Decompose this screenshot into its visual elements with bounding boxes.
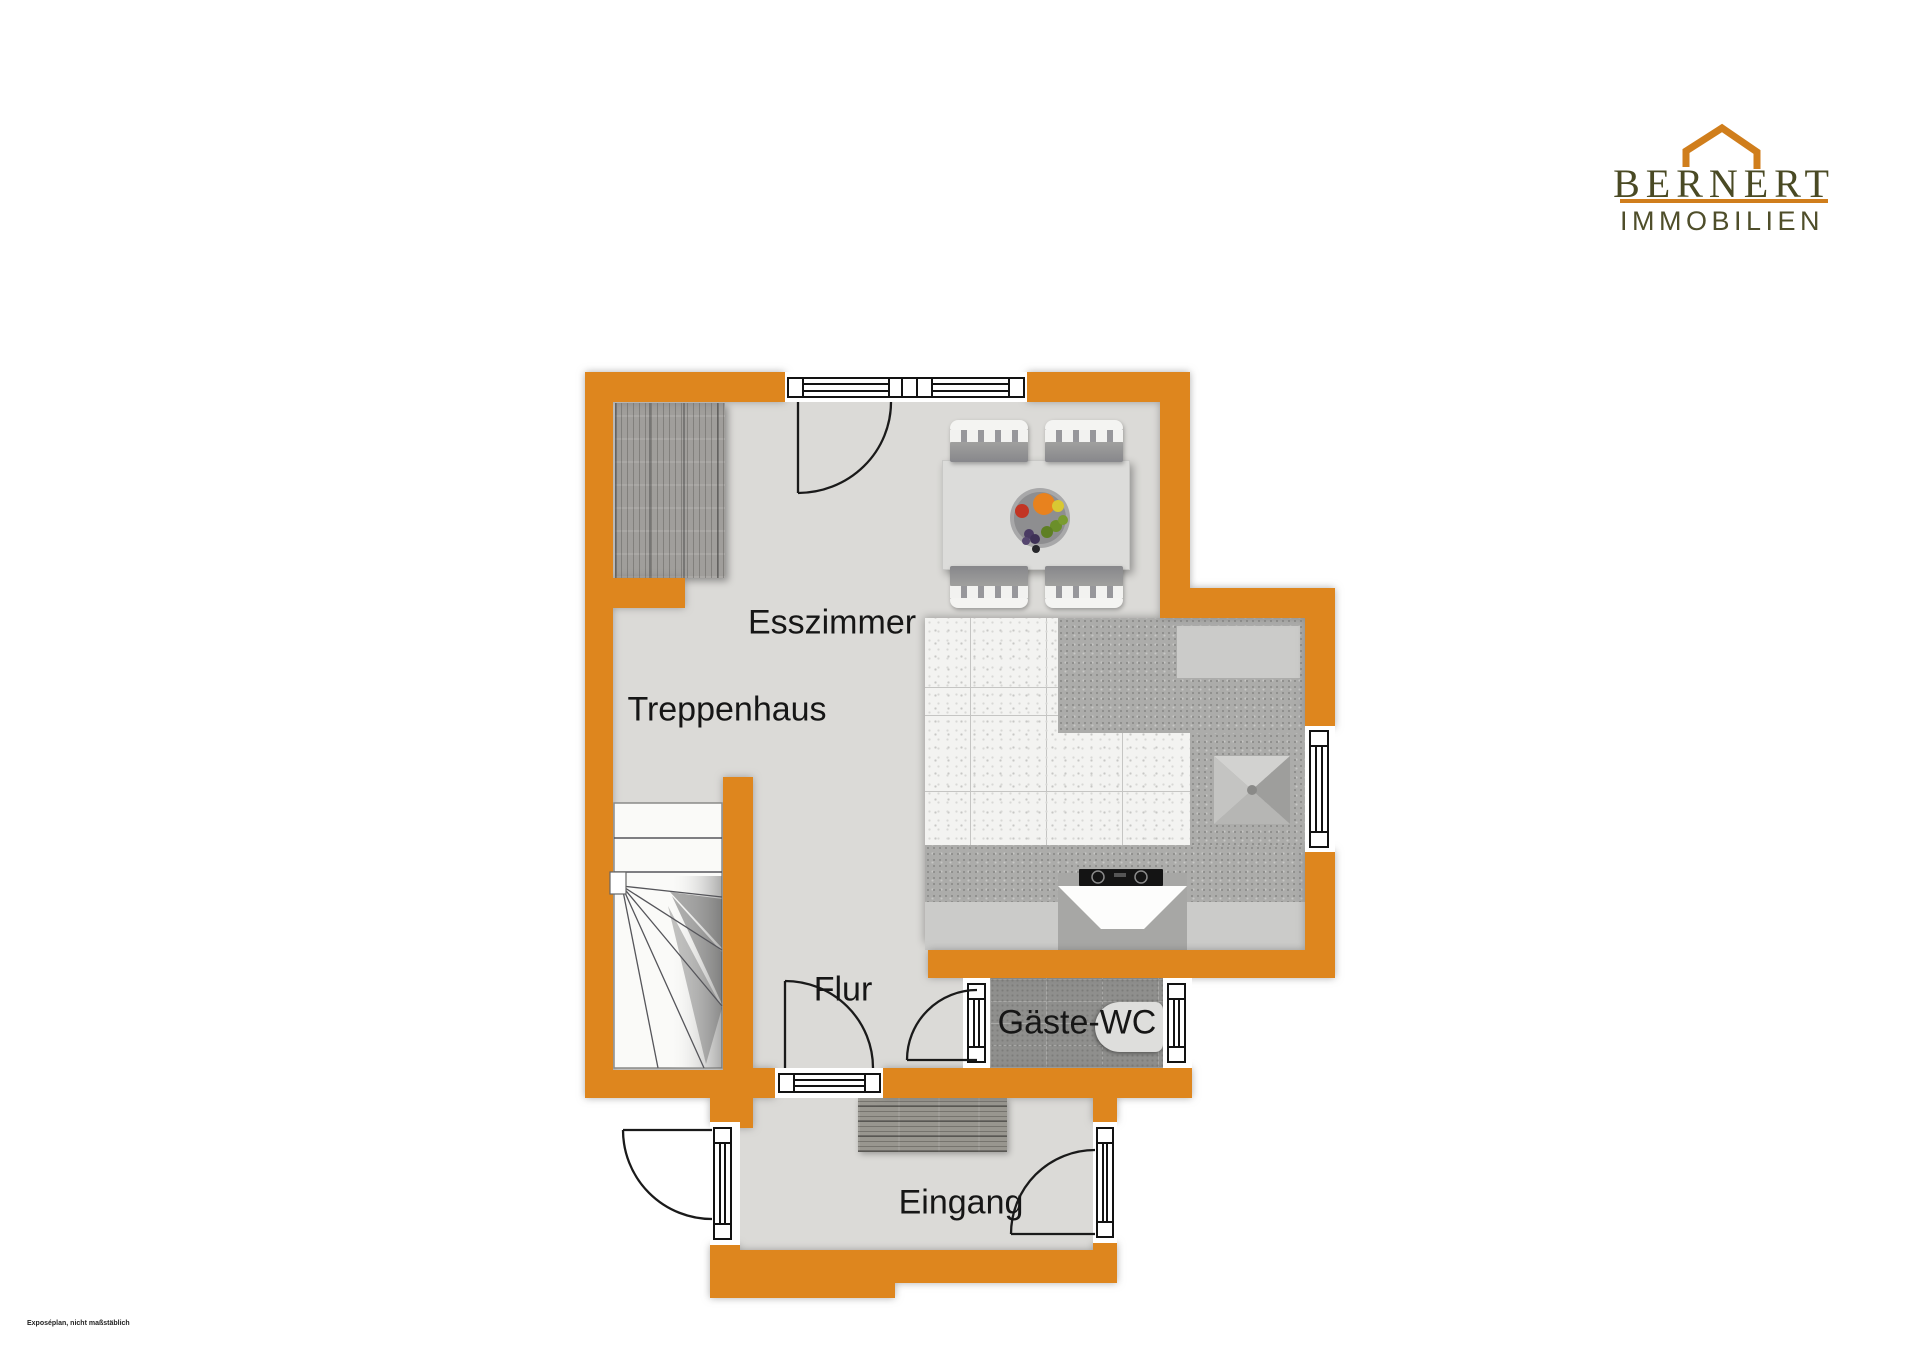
room-label-esszimmer: Esszimmer [748, 604, 916, 643]
window-frame [1309, 730, 1329, 848]
disclaimer-note: Exposéplan, nicht maßstäblich [27, 1320, 130, 1327]
entry-door-frame [713, 1127, 732, 1240]
wall-segment [883, 1068, 1192, 1098]
wall-segment [710, 1098, 740, 1125]
window-frame [1167, 983, 1186, 1063]
window-door-frame [787, 377, 905, 398]
door-frame [967, 983, 986, 1063]
door-frame [778, 1073, 881, 1093]
wall-segment [585, 372, 613, 1095]
wall-segment [895, 1250, 1117, 1283]
wall-segment [1160, 372, 1190, 618]
room-label-treppenhaus: Treppenhaus [627, 691, 826, 730]
wall-segment [1305, 618, 1335, 728]
brand-divider [1620, 199, 1828, 203]
wall-segment [710, 1250, 895, 1298]
wall-segment [1093, 1098, 1117, 1122]
brand-tagline: IMMOBILIEN [1620, 206, 1824, 237]
door-frame [1096, 1127, 1114, 1238]
wall-segment [1093, 1243, 1117, 1283]
wall-segment [753, 1068, 775, 1098]
wall-segment [1160, 588, 1335, 618]
wall-segment [585, 372, 785, 402]
wall-segment [723, 777, 753, 1070]
floorplan-page: Esszimmer Treppenhaus Flur Gäste-WC Eing… [0, 0, 1920, 1358]
room-label-gaeste-wc: Gäste-WC [998, 1004, 1157, 1043]
wall-segment [585, 578, 685, 608]
room-label-eingang: Eingang [899, 1184, 1024, 1223]
window-frame [916, 377, 1025, 398]
wall-segment [928, 950, 1335, 978]
room-label-flur: Flur [814, 971, 873, 1010]
